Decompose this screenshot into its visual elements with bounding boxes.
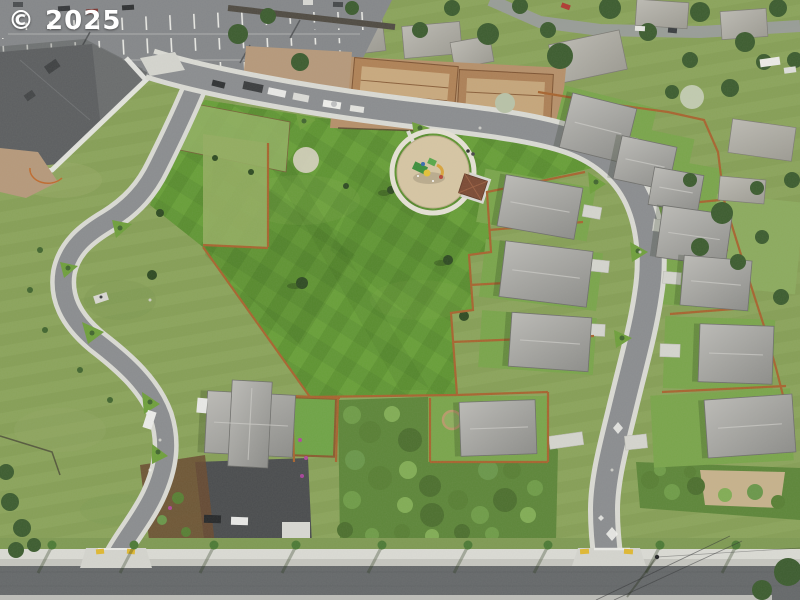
copyright-watermark: © 2025: [8, 6, 121, 36]
aerial-scene: [0, 0, 800, 600]
photo-grain-overlay: [0, 0, 800, 600]
aerial-photo-subdivision: © 2025: [0, 0, 800, 600]
